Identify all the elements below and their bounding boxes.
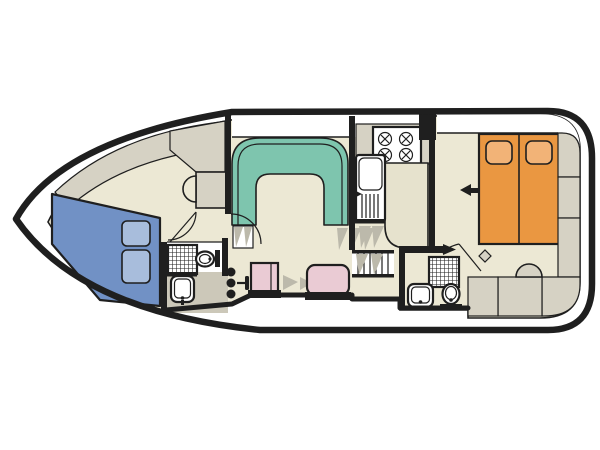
wardrobe	[196, 172, 226, 208]
aft-sink-faucet	[419, 300, 423, 304]
front-bathroom-left-wall	[161, 242, 167, 314]
front-sink-faucet	[181, 296, 185, 300]
floor-plan-canvas	[0, 0, 600, 450]
galley-counter-unit	[385, 163, 428, 248]
front-sink-stem	[181, 300, 184, 305]
throttle-lever-grip	[245, 276, 249, 290]
aft-sink	[408, 284, 433, 307]
wardrobe-unit-2	[558, 177, 580, 218]
front-bathroom-right-wall	[222, 238, 228, 276]
boat-floor-plan	[0, 0, 600, 450]
bow-bulkhead-wall	[225, 112, 231, 214]
wardrobe-unit-3	[558, 218, 580, 277]
aft-shower-tray	[429, 257, 459, 287]
aft-pillow-2	[526, 141, 552, 164]
wardrobe-unit-1	[558, 133, 580, 177]
bow-pillow-1	[122, 221, 150, 246]
companion-seat	[307, 265, 349, 295]
front-toilet	[196, 250, 220, 267]
front-sink	[171, 276, 194, 305]
front-toilet-hinge	[208, 257, 211, 260]
saloon-galley-wall	[349, 116, 355, 250]
aft-bathroom-top-wall	[399, 246, 443, 253]
front-toilet-tank	[215, 250, 220, 267]
helm-seat	[251, 263, 278, 293]
control-knob-2	[227, 279, 236, 288]
deck-end-wall-block	[419, 112, 436, 140]
stairs-bottom-edge	[352, 274, 394, 278]
front-bathroom	[166, 242, 228, 313]
bench-seat-mid	[498, 277, 542, 316]
aft-toilet-hinge	[449, 298, 453, 302]
bench-seat-left	[468, 277, 498, 316]
aft-toilet	[440, 284, 462, 309]
aft-pillow-1	[486, 141, 512, 164]
galley-sink-base-wall	[355, 219, 385, 224]
control-knob-3	[227, 290, 236, 299]
stairs-top-edge	[352, 250, 394, 254]
bow-pillow-2	[122, 250, 150, 283]
galley-sink	[356, 155, 385, 222]
front-shower-tray	[168, 245, 197, 274]
aft-cabin	[460, 133, 580, 316]
